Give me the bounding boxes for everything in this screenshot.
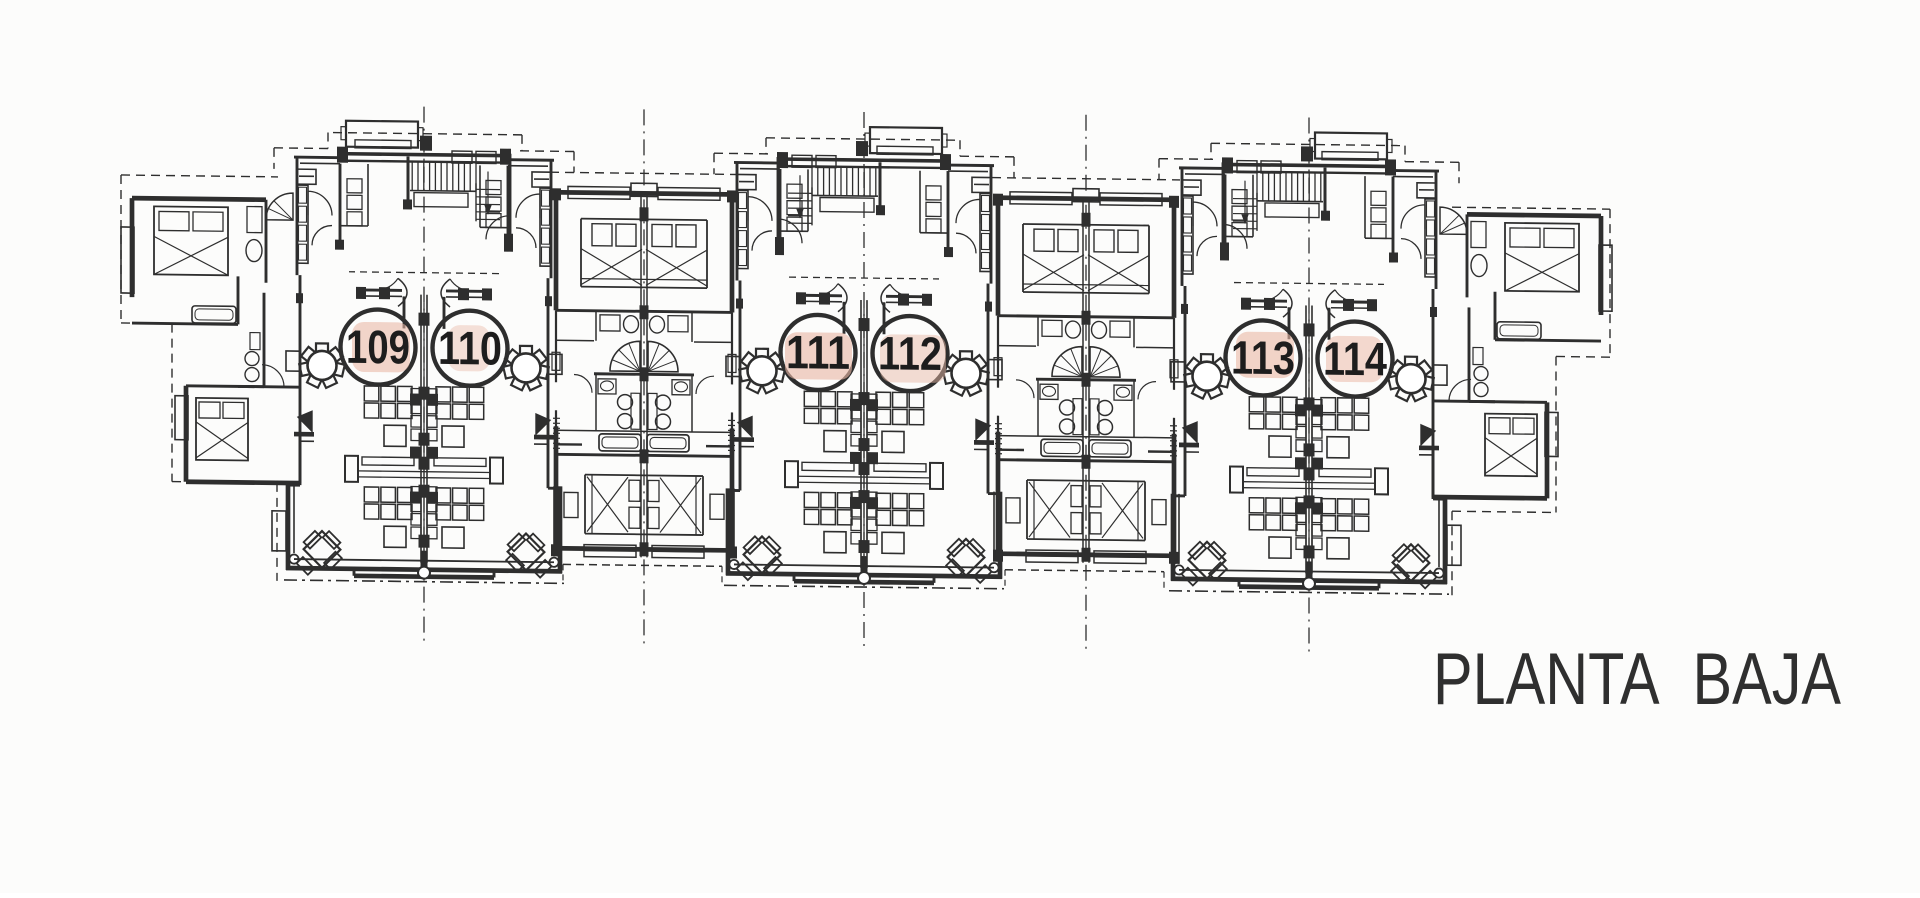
svg-text:PLANTA BAJA: PLANTA BAJA bbox=[1433, 639, 1841, 720]
svg-text:110: 110 bbox=[438, 321, 502, 375]
svg-text:112: 112 bbox=[878, 326, 942, 380]
svg-text:114: 114 bbox=[1323, 332, 1387, 386]
svg-text:113: 113 bbox=[1231, 331, 1295, 385]
svg-text:109: 109 bbox=[346, 320, 410, 374]
svg-text:111: 111 bbox=[786, 325, 850, 379]
